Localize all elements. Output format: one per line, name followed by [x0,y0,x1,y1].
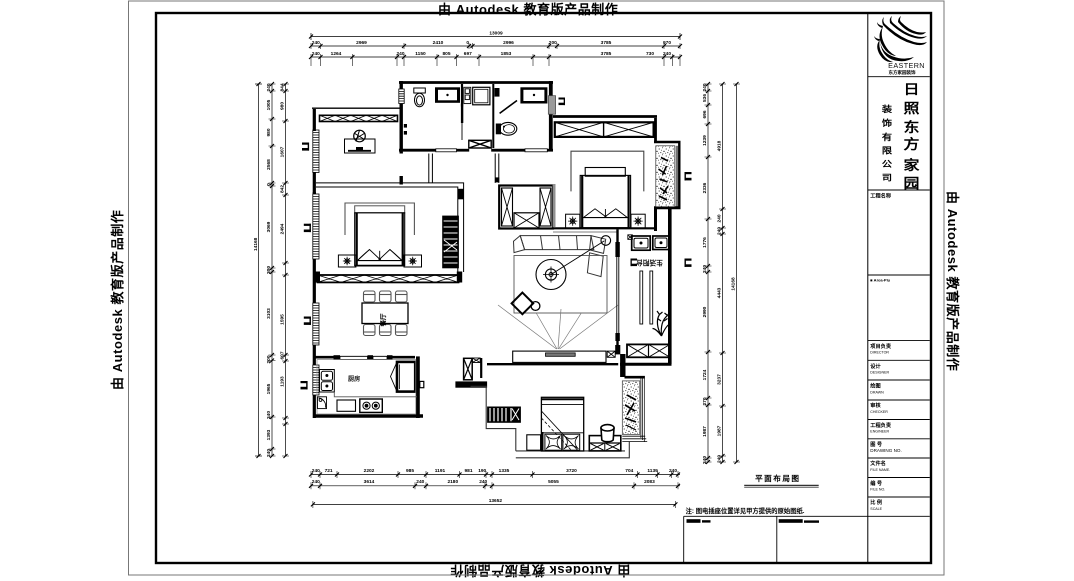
svg-text:2969: 2969 [356,40,367,46]
svg-text:注: 图电插座位置详见甲方提供的原始图纸.: 注: 图电插座位置详见甲方提供的原始图纸. [686,506,805,515]
svg-text:240: 240 [266,83,272,91]
svg-text:240: 240 [416,479,424,485]
svg-text:1853: 1853 [501,51,512,57]
svg-text:3720: 3720 [566,468,577,474]
svg-text:文件名: 文件名 [870,459,886,467]
svg-text:842: 842 [280,185,286,193]
svg-text:ENGINEER: ENGINEER [870,430,889,434]
svg-text:190: 190 [478,468,486,474]
svg-text:240: 240 [702,456,708,464]
svg-text:3069: 3069 [266,221,272,232]
svg-text:东: 东 [904,119,920,135]
svg-text:805: 805 [442,51,450,57]
svg-text:公: 公 [882,160,893,169]
svg-text:DESIGNER: DESIGNER [870,371,889,375]
svg-text:240: 240 [717,227,723,235]
svg-text:240: 240 [266,449,272,457]
svg-text:2083: 2083 [644,479,655,485]
svg-text:696: 696 [702,110,708,118]
svg-text:工程负责: 工程负责 [870,421,891,429]
svg-text:240: 240 [479,479,487,485]
svg-text:工程名称: 工程名称 [870,192,892,200]
svg-text:1965: 1965 [266,383,272,394]
svg-text:FILE NAME.: FILE NAME. [870,468,890,472]
svg-text:981: 981 [464,468,472,474]
svg-text:饰: 饰 [881,118,893,128]
svg-text:1005: 1005 [266,99,272,110]
svg-text:■ Area-Plu: ■ Area-Plu [870,278,890,283]
svg-text:DRAWING NO.: DRAWING NO. [870,448,901,453]
svg-text:限: 限 [882,146,893,155]
svg-text:1607: 1607 [280,146,286,157]
svg-text:3614: 3614 [364,479,375,485]
svg-text:200: 200 [549,40,557,46]
svg-text:图 号: 图 号 [870,440,882,448]
svg-text:970: 970 [663,40,671,46]
svg-text:装: 装 [881,104,893,114]
svg-text:844: 844 [280,83,286,91]
svg-text:240: 240 [702,265,708,273]
svg-text:240: 240 [702,83,708,91]
svg-text:司: 司 [882,173,892,182]
svg-text:DIRECTOR: DIRECTOR [870,351,889,355]
svg-text:2568: 2568 [266,159,272,170]
svg-text:985: 985 [406,468,414,474]
svg-text:绘图: 绘图 [870,382,880,390]
svg-text:3785: 3785 [601,40,612,46]
svg-text:编 号: 编 号 [870,479,882,487]
svg-text:2180: 2180 [447,479,458,485]
svg-text:1264: 1264 [331,51,342,57]
svg-text:DRAWN: DRAWN [870,390,884,394]
svg-text:270: 270 [702,397,708,405]
svg-text:200: 200 [266,355,272,363]
svg-text:1150: 1150 [415,51,426,57]
svg-text:730: 730 [646,51,654,57]
svg-text:1335: 1335 [499,468,510,474]
svg-text:比 例: 比 例 [870,498,882,506]
svg-text:4443: 4443 [717,287,723,298]
svg-text:1139: 1139 [647,468,658,474]
svg-text:1776: 1776 [702,237,708,248]
svg-text:14168: 14168 [253,237,259,251]
svg-text:项目负责: 项目负责 [870,342,891,350]
svg-text:240: 240 [312,479,320,485]
svg-text:1724: 1724 [702,369,708,380]
svg-text:照: 照 [904,101,920,117]
svg-text:240: 240 [717,214,723,222]
svg-text:697: 697 [464,51,472,57]
svg-text:1193: 1193 [280,376,286,387]
svg-text:平面布局图: 平面布局图 [755,473,800,483]
svg-text:3785: 3785 [601,51,612,57]
svg-text:厨房: 厨房 [348,375,360,383]
svg-text:2410: 2410 [433,40,444,46]
svg-text:704: 704 [625,468,633,474]
svg-text:生活阳台: 生活阳台 [636,259,663,268]
svg-text:FILE NO.: FILE NO. [870,488,885,492]
svg-text:家: 家 [904,157,920,173]
svg-text:餐厅: 餐厅 [380,313,388,328]
svg-text:1595: 1595 [280,314,286,325]
svg-text:2996: 2996 [503,40,514,46]
svg-text:13652: 13652 [489,498,503,504]
svg-text:607: 607 [280,351,286,359]
svg-text:240: 240 [663,51,671,57]
svg-text:设计: 设计 [870,362,881,370]
svg-text:方: 方 [904,136,920,152]
svg-text:4918: 4918 [717,140,723,151]
svg-text:200: 200 [266,266,272,274]
svg-text:536: 536 [702,94,708,102]
svg-text:1987: 1987 [702,426,708,437]
svg-text:1239: 1239 [702,135,708,146]
svg-text:13009: 13009 [489,30,503,36]
svg-text:980: 980 [266,128,272,136]
svg-text:1393: 1393 [266,429,272,440]
svg-text:0: 0 [466,40,469,46]
svg-text:5055: 5055 [548,479,559,485]
svg-text:14168: 14168 [731,277,737,291]
svg-text:240: 240 [312,40,320,46]
svg-text:1987: 1987 [717,425,723,436]
svg-text:园: 园 [904,176,920,192]
svg-text:CHECKER: CHECKER [870,410,888,414]
svg-text:有: 有 [882,132,892,142]
svg-text:240: 240 [717,455,723,463]
svg-text:980: 980 [280,102,286,110]
svg-text:240: 240 [266,411,272,419]
svg-text:721: 721 [325,468,333,474]
svg-text:日: 日 [904,82,920,98]
svg-text:240: 240 [669,468,677,474]
svg-text:3237: 3237 [717,374,723,385]
svg-text:1191: 1191 [435,468,446,474]
svg-text:EASTERN: EASTERN [888,61,925,70]
svg-text:SCALE: SCALE [870,507,882,511]
svg-text:240: 240 [312,468,320,474]
svg-text:0: 0 [266,183,272,186]
svg-text:2494: 2494 [280,223,286,234]
svg-text:2336: 2336 [702,182,708,193]
svg-text:2990: 2990 [702,306,708,317]
svg-text:240: 240 [312,51,320,57]
svg-text:3103: 3103 [266,308,272,319]
svg-text:2202: 2202 [364,468,375,474]
svg-text:审核: 审核 [870,401,881,409]
svg-text:东方家园装饰: 东方家园装饰 [889,69,916,76]
svg-text:240: 240 [396,51,404,57]
